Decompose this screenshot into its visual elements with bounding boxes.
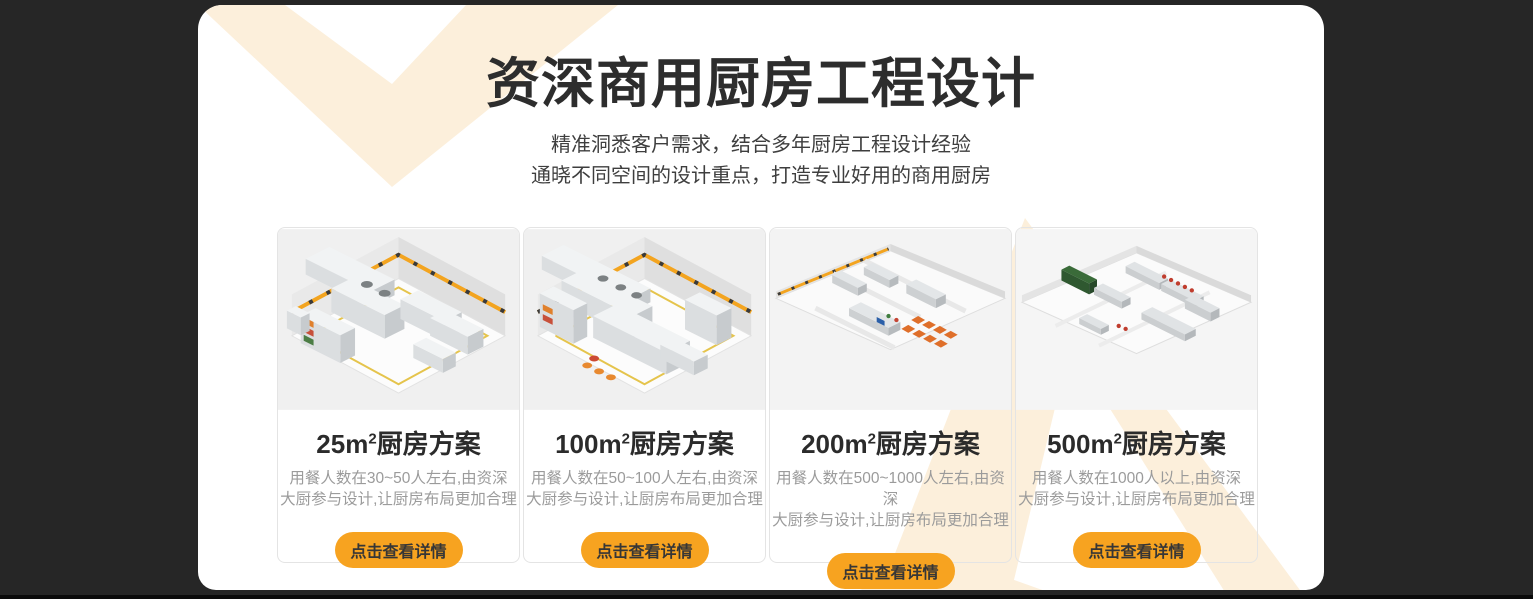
view-details-button[interactable]: 点击查看详情 [335, 532, 463, 568]
view-details-button[interactable]: 点击查看详情 [581, 532, 709, 568]
card-title: 200m2厨房方案 [770, 424, 1011, 461]
kitchen-render-200m2-image [770, 228, 1011, 411]
view-details-button[interactable]: 点击查看详情 [1073, 532, 1201, 568]
card-description: 用餐人数在1000人以上,由资深 大厨参与设计,让厨房布局更加合理 [1016, 468, 1257, 510]
kitchen-plan-card-25m2: 25m2厨房方案 用餐人数在30~50人左右,由资深 大厨参与设计,让厨房布局更… [277, 227, 520, 563]
subtitle-line-2: 通晓不同空间的设计重点，打造专业好用的商用厨房 [198, 161, 1324, 192]
page-title: 资深商用厨房工程设计 [198, 54, 1324, 114]
card-description: 用餐人数在500~1000人左右,由资深 大厨参与设计,让厨房布局更加合理 [770, 468, 1011, 531]
card-description: 用餐人数在30~50人左右,由资深 大厨参与设计,让厨房布局更加合理 [278, 468, 519, 510]
subtitle-line-1: 精准洞悉客户需求，结合多年厨房工程设计经验 [198, 130, 1324, 161]
kitchen-plan-card-500m2: 500m2厨房方案 用餐人数在1000人以上,由资深 大厨参与设计,让厨房布局更… [1015, 227, 1258, 563]
card-title: 500m2厨房方案 [1016, 424, 1257, 461]
content-panel: 资深商用厨房工程设计 精准洞悉客户需求，结合多年厨房工程设计经验 通晓不同空间的… [198, 5, 1324, 590]
cards-container: 25m2厨房方案 用餐人数在30~50人左右,由资深 大厨参与设计,让厨房布局更… [277, 227, 1258, 563]
bottom-divider [0, 595, 1533, 599]
view-details-button[interactable]: 点击查看详情 [827, 553, 955, 589]
page-background: 资深商用厨房工程设计 精准洞悉客户需求，结合多年厨房工程设计经验 通晓不同空间的… [0, 0, 1533, 599]
card-title: 25m2厨房方案 [278, 424, 519, 461]
kitchen-render-25m2-image [278, 228, 519, 411]
kitchen-plan-card-200m2: 200m2厨房方案 用餐人数在500~1000人左右,由资深 大厨参与设计,让厨… [769, 227, 1012, 563]
card-title: 100m2厨房方案 [524, 424, 765, 461]
kitchen-render-100m2-image [524, 228, 765, 411]
card-description: 用餐人数在50~100人左右,由资深 大厨参与设计,让厨房布局更加合理 [524, 468, 765, 510]
kitchen-plan-card-100m2: 100m2厨房方案 用餐人数在50~100人左右,由资深 大厨参与设计,让厨房布… [523, 227, 766, 563]
kitchen-render-500m2-image [1016, 228, 1257, 411]
section-header: 资深商用厨房工程设计 精准洞悉客户需求，结合多年厨房工程设计经验 通晓不同空间的… [198, 5, 1324, 192]
